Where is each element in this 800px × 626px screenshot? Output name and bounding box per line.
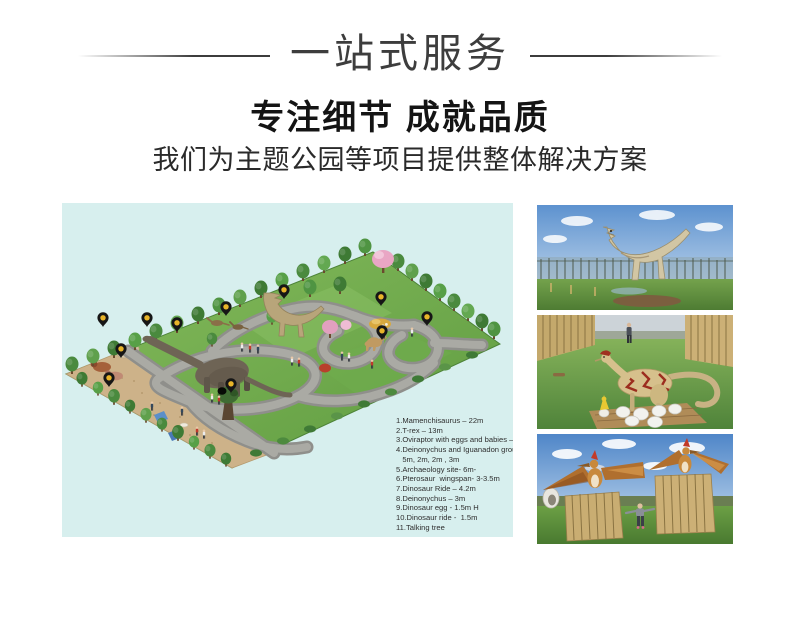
photo-t-rex <box>537 205 733 310</box>
legend-line: 9.Dinosaur egg - 1.5m H <box>396 503 510 513</box>
legend-line: 3.Oviraptor with eggs and babies – 3m <box>396 435 510 445</box>
mulch-mound <box>613 295 681 307</box>
log <box>553 373 565 376</box>
headline: 专注细节 成就品质 <box>0 90 800 139</box>
banner-divider-right <box>530 55 722 57</box>
banner-row: 一站式服务 <box>0 30 800 78</box>
map-pin-2 <box>141 312 152 327</box>
photo-oviraptor-eggs <box>537 315 733 429</box>
legend-line: 5m, 2m, 2m , 3m <box>396 455 510 465</box>
map-pin-1 <box>97 312 108 327</box>
legend-line: 10.Dinosaur ride - 1.5m <box>396 513 510 523</box>
legend-line: 5.Archaeology site- 6m- <box>396 465 510 475</box>
legend-line: 7.Dinosaur Ride – 4.2m <box>396 484 510 494</box>
wood-crate-right <box>655 474 715 534</box>
photo-pterosaurs <box>537 434 733 544</box>
map-legend: 1.Mamenchisaurus – 22m2.T-rex – 13m3.Ovi… <box>396 416 510 532</box>
subheadline: 我们为主题公园等项目提供整体解决方案 <box>0 138 800 177</box>
park-map-illustration: 1.Mamenchisaurus – 22m2.T-rex – 13m3.Ovi… <box>62 203 513 537</box>
egg-prop <box>543 488 559 508</box>
legend-line: 4.Deinonychus and Iguanadon group <box>396 445 510 455</box>
legend-line: 6.Pterosaur wingspan- 3-3.5m <box>396 474 510 484</box>
banner-divider-left <box>78 55 270 57</box>
photo-column <box>537 205 733 544</box>
banner-title: 一站式服务 <box>290 32 510 76</box>
legend-line: 11.Talking tree <box>396 523 510 533</box>
wood-crate-left <box>565 492 623 541</box>
wood-palisade-right <box>685 315 733 367</box>
promo-page: 一站式服务 专注细节 成就品质 我们为主题公园等项目提供整体解决方案 <box>0 0 800 626</box>
pond <box>611 288 647 295</box>
legend-line: 2.T-rex – 13m <box>396 426 510 436</box>
legend-line: 1.Mamenchisaurus – 22m <box>396 416 510 426</box>
red-bush <box>319 364 331 373</box>
legend-line: 8.Deinonychus – 3m <box>396 494 510 504</box>
